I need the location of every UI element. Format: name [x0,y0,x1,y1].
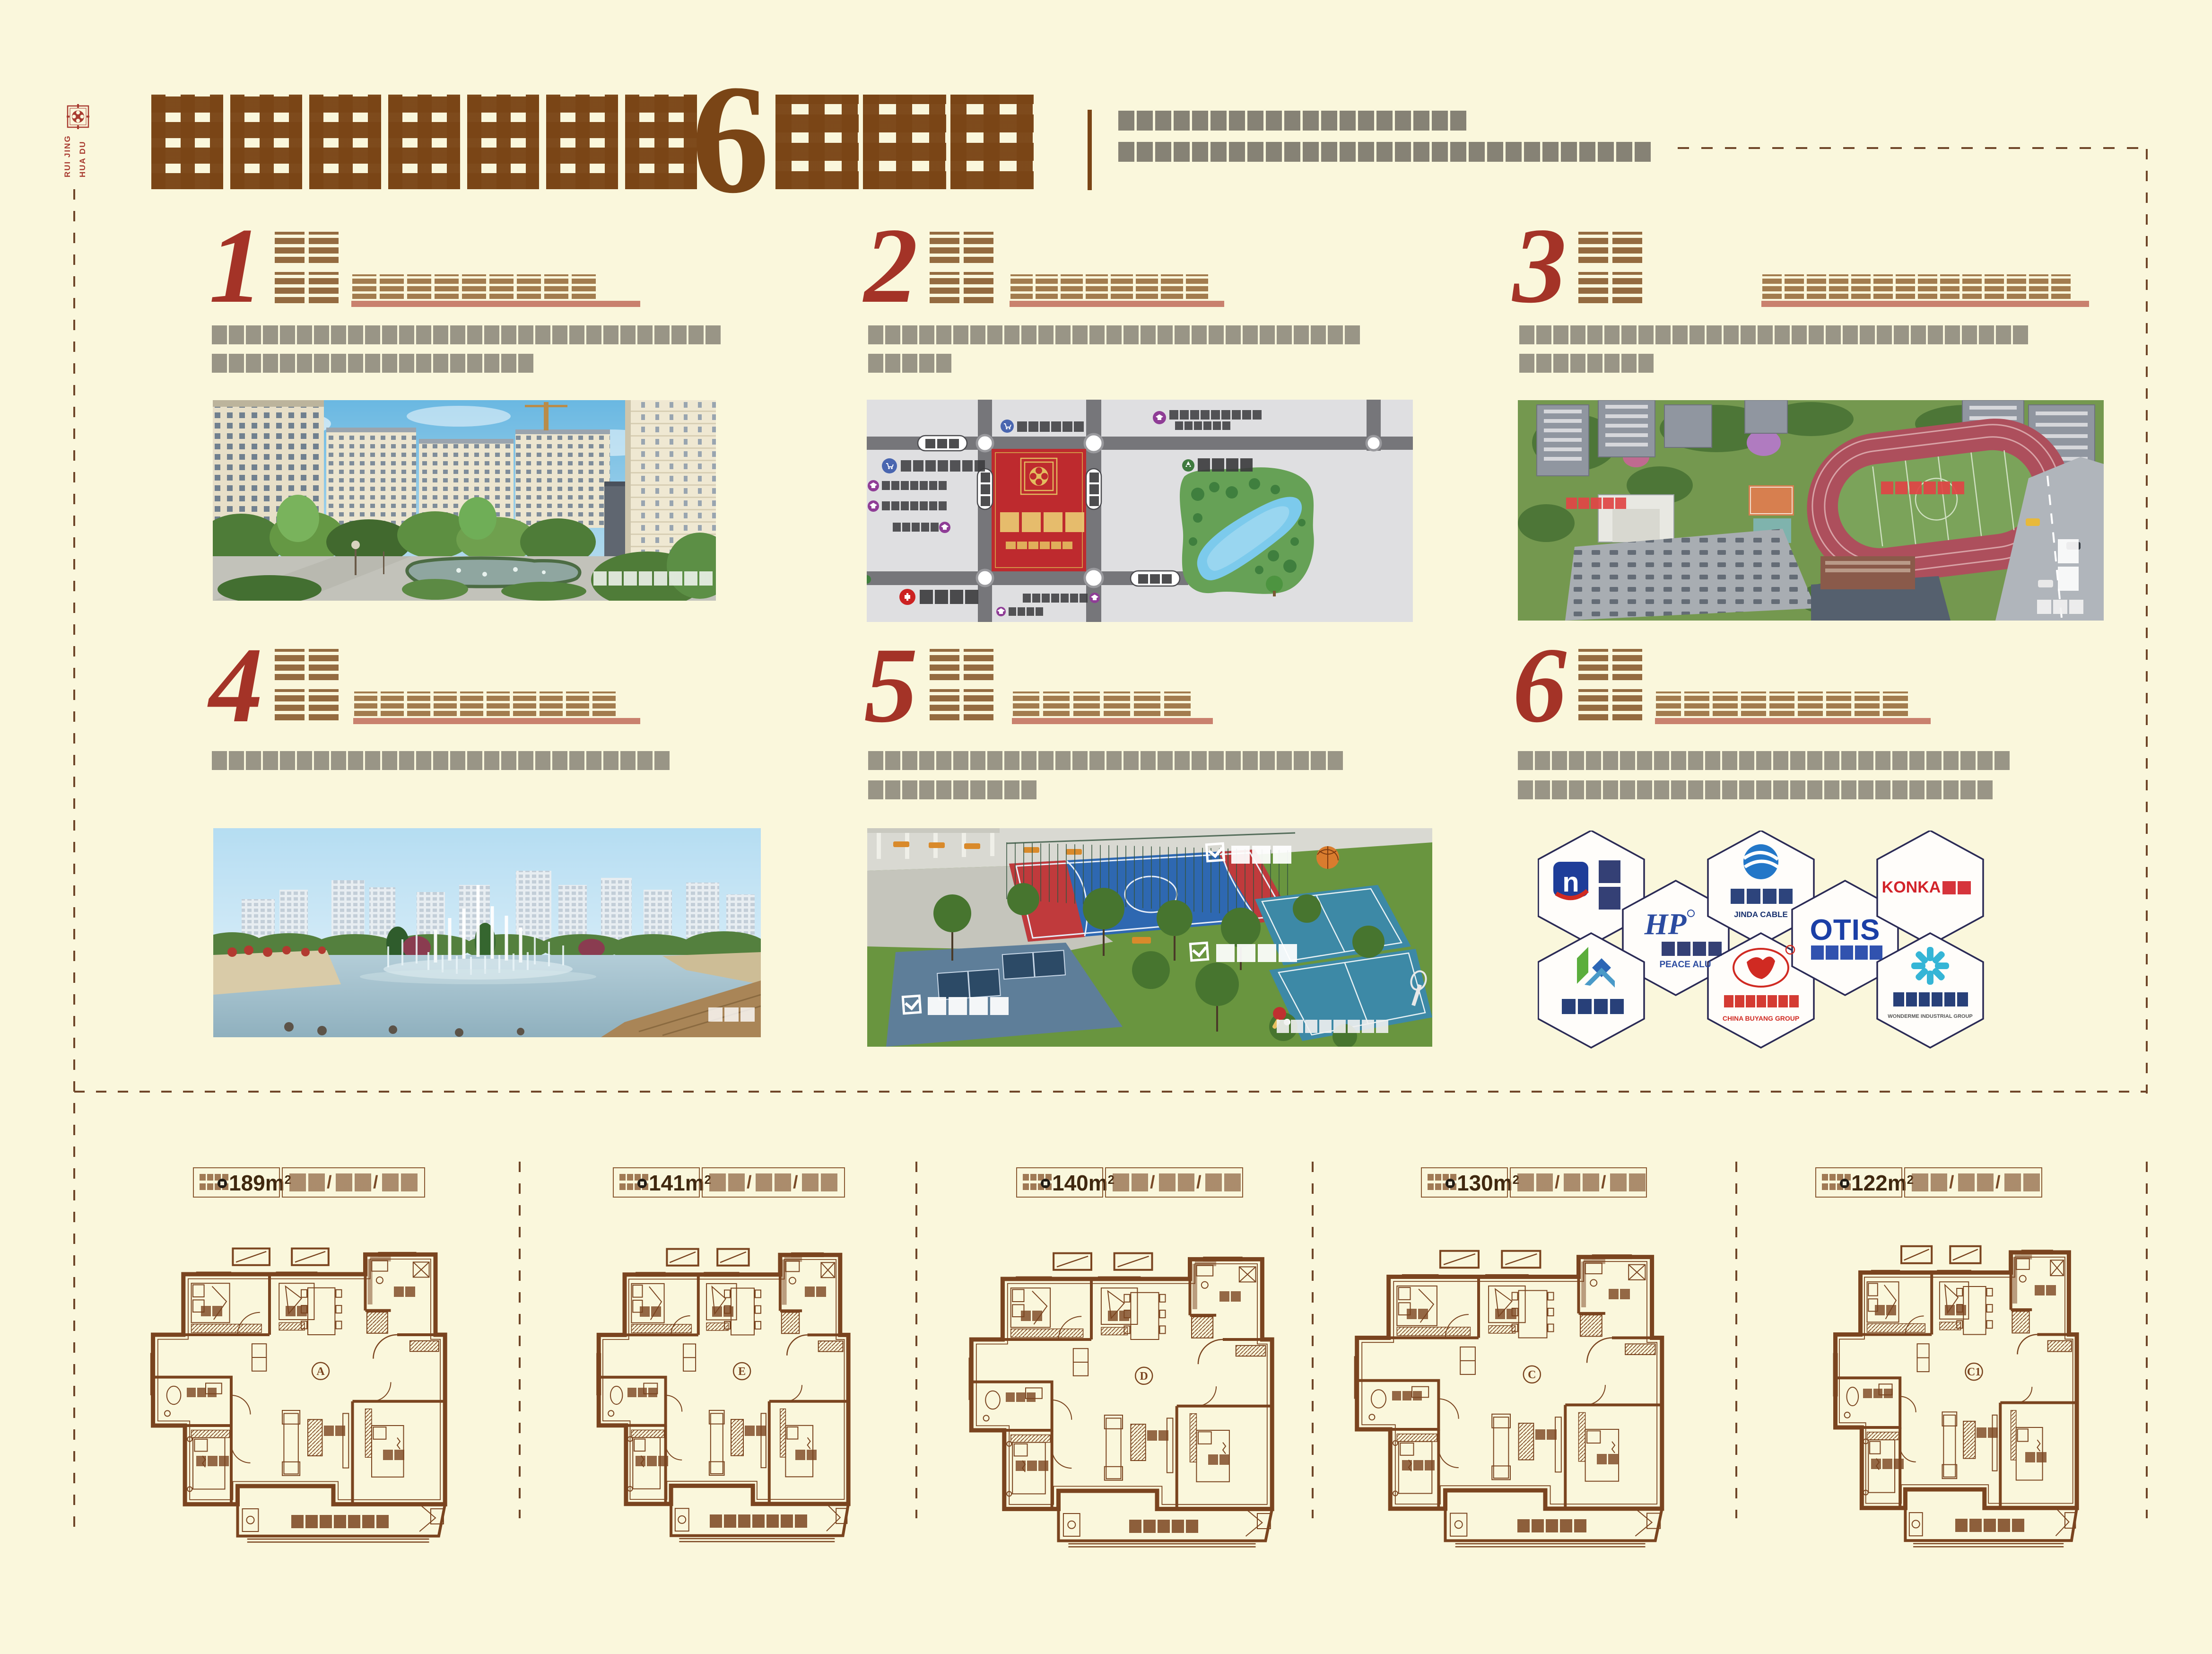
svg-text:C: C [1528,1369,1536,1381]
svg-text:A: A [316,1365,325,1378]
svg-text:CHINA BUYANG GROUP: CHINA BUYANG GROUP [1723,1015,1799,1022]
svg-text:D: D [1140,1370,1148,1383]
svg-text:OTIS: OTIS [1810,914,1881,946]
svg-text:C1: C1 [1967,1366,1981,1378]
svg-text:PEACE ALU: PEACE ALU [1659,960,1711,970]
svg-text:HP: HP [1644,907,1687,941]
svg-text:WONDERME INDUSTRIAL GROUP: WONDERME INDUSTRIAL GROUP [1888,1014,1972,1019]
svg-text:E: E [738,1365,746,1378]
svg-text:n: n [1562,867,1579,898]
svg-text:KONKA: KONKA [1882,878,1941,896]
svg-text:JINDA CABLE: JINDA CABLE [1734,910,1788,919]
